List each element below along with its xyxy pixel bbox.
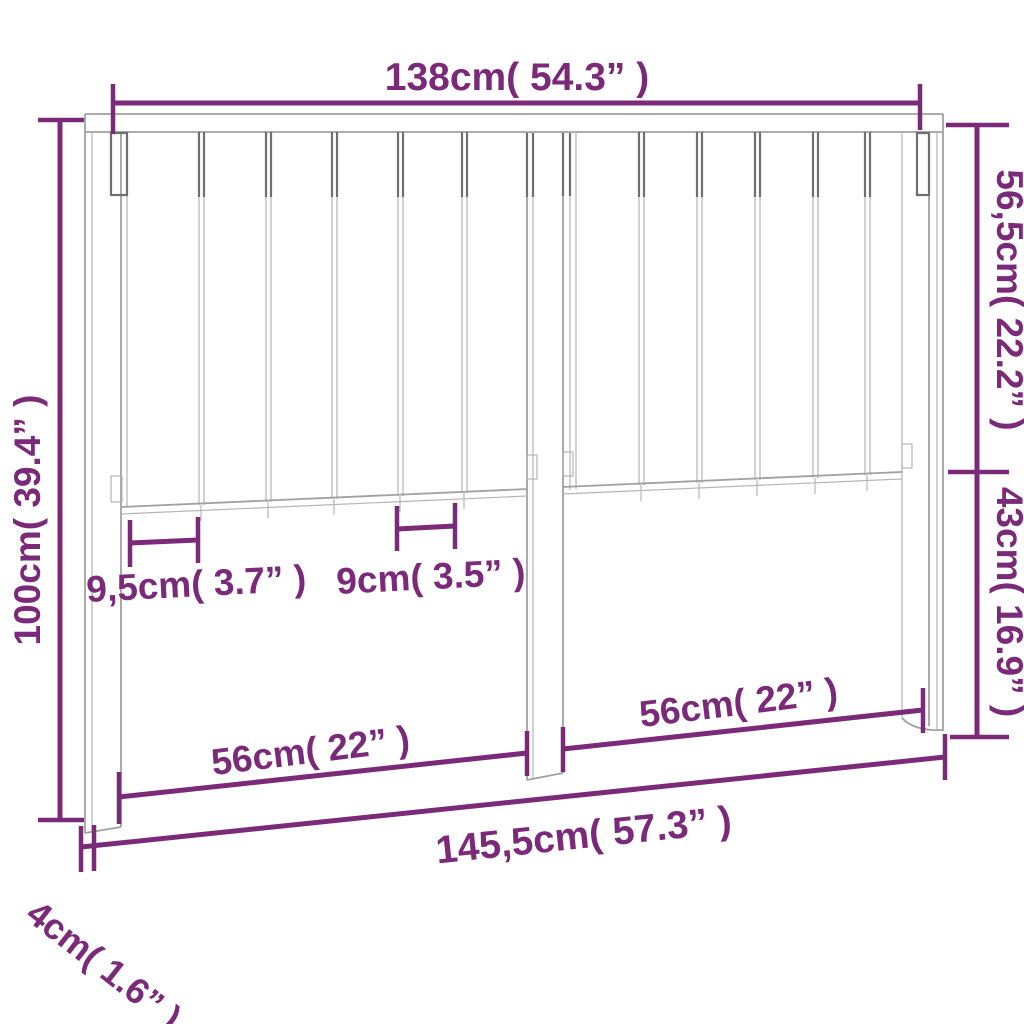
label-upper-height: 56,5cm( 22.2” ) [989, 169, 1024, 430]
label-right-section-width: 56cm( 22” ) [637, 670, 840, 735]
headboard-dimension-diagram: 138cm( 54.3” ) 56,5cm( 22.2” ) 43cm( 16.… [0, 0, 1024, 1024]
label-board-thickness: 4cm( 1.6” ) [19, 892, 189, 1024]
dimension-lines [38, 84, 1009, 872]
right-leg [902, 132, 943, 731]
label-left-section-width: 56cm( 22” ) [209, 718, 412, 783]
label-slat-spacing: 9cm( 3.5” ) [335, 551, 526, 602]
dim-slat-spacing [397, 503, 455, 551]
label-total-height: 100cm( 39.4” ) [7, 395, 48, 646]
label-lower-height: 43cm( 16.9” ) [989, 487, 1024, 717]
headboard-drawing [85, 114, 943, 833]
center-post [527, 132, 576, 780]
diagram-canvas: 138cm( 54.3” ) 56,5cm( 22.2” ) 43cm( 16.… [0, 0, 1024, 1024]
label-slat-width: 9,5cm( 3.7” ) [85, 558, 307, 610]
slat-bottom-rail [121, 472, 902, 514]
dim-slat-width [130, 517, 198, 567]
label-top-width: 138cm( 54.3” ) [385, 56, 650, 99]
slats-right [639, 132, 870, 501]
slats-left [199, 132, 467, 521]
label-total-width: 145,5cm( 57.3” ) [434, 799, 734, 873]
top-rail [85, 114, 943, 132]
left-leg [85, 114, 127, 833]
